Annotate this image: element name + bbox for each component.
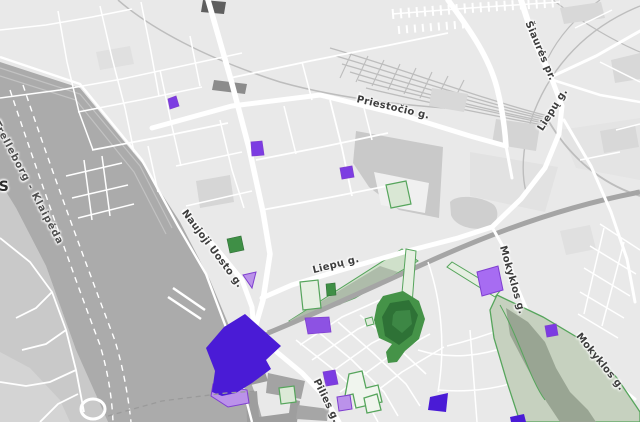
map-canvas[interactable]: Trelleborg - Klaipėda S Priestočio g. Ši… xyxy=(0,0,640,422)
station-garden xyxy=(386,181,411,208)
green-square-old-town xyxy=(279,386,296,404)
green-court-west xyxy=(300,280,321,310)
map-tiles xyxy=(0,0,640,422)
green-diamond-small xyxy=(365,317,374,326)
